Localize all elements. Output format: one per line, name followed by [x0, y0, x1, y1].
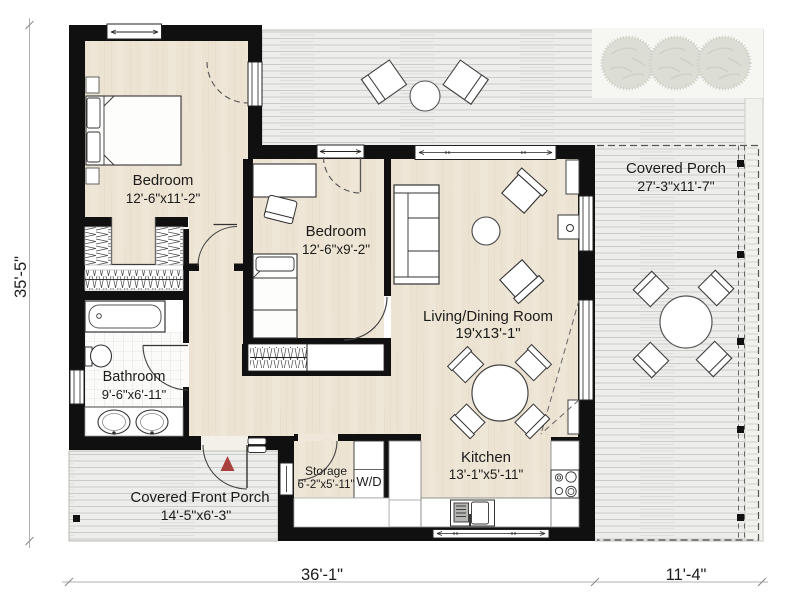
svg-text:35'-5": 35'-5" — [12, 256, 30, 298]
svg-text:Bathroom: Bathroom — [103, 369, 166, 385]
svg-text:Covered Front Porch: Covered Front Porch — [130, 489, 269, 506]
svg-text:Living/Dining Room: Living/Dining Room — [423, 308, 553, 325]
svg-text:12'-6"x11'-2": 12'-6"x11'-2" — [126, 191, 201, 206]
svg-text:9'-6"x6'-11": 9'-6"x6'-11" — [102, 387, 167, 402]
svg-text:14'-5"x6'-3": 14'-5"x6'-3" — [161, 507, 232, 523]
svg-text:19'x13'-1": 19'x13'-1" — [455, 325, 520, 342]
svg-text:36'-1": 36'-1" — [301, 566, 343, 584]
svg-text:11'-4": 11'-4" — [666, 566, 707, 584]
svg-text:Bedroom: Bedroom — [133, 172, 194, 189]
svg-text:Covered Porch: Covered Porch — [626, 160, 726, 177]
svg-text:W/D: W/D — [356, 474, 381, 489]
svg-text:12'-6"x9'-2": 12'-6"x9'-2" — [302, 242, 370, 257]
svg-text:Kitchen: Kitchen — [461, 449, 511, 466]
svg-text:6'-2"x5'-11": 6'-2"x5'-11" — [297, 479, 354, 491]
svg-text:Storage: Storage — [305, 464, 347, 478]
svg-text:27'-3"x11'-7": 27'-3"x11'-7" — [637, 178, 714, 194]
svg-text:13'-1"x5'-11": 13'-1"x5'-11" — [449, 467, 524, 482]
svg-text:Bedroom: Bedroom — [306, 223, 367, 240]
